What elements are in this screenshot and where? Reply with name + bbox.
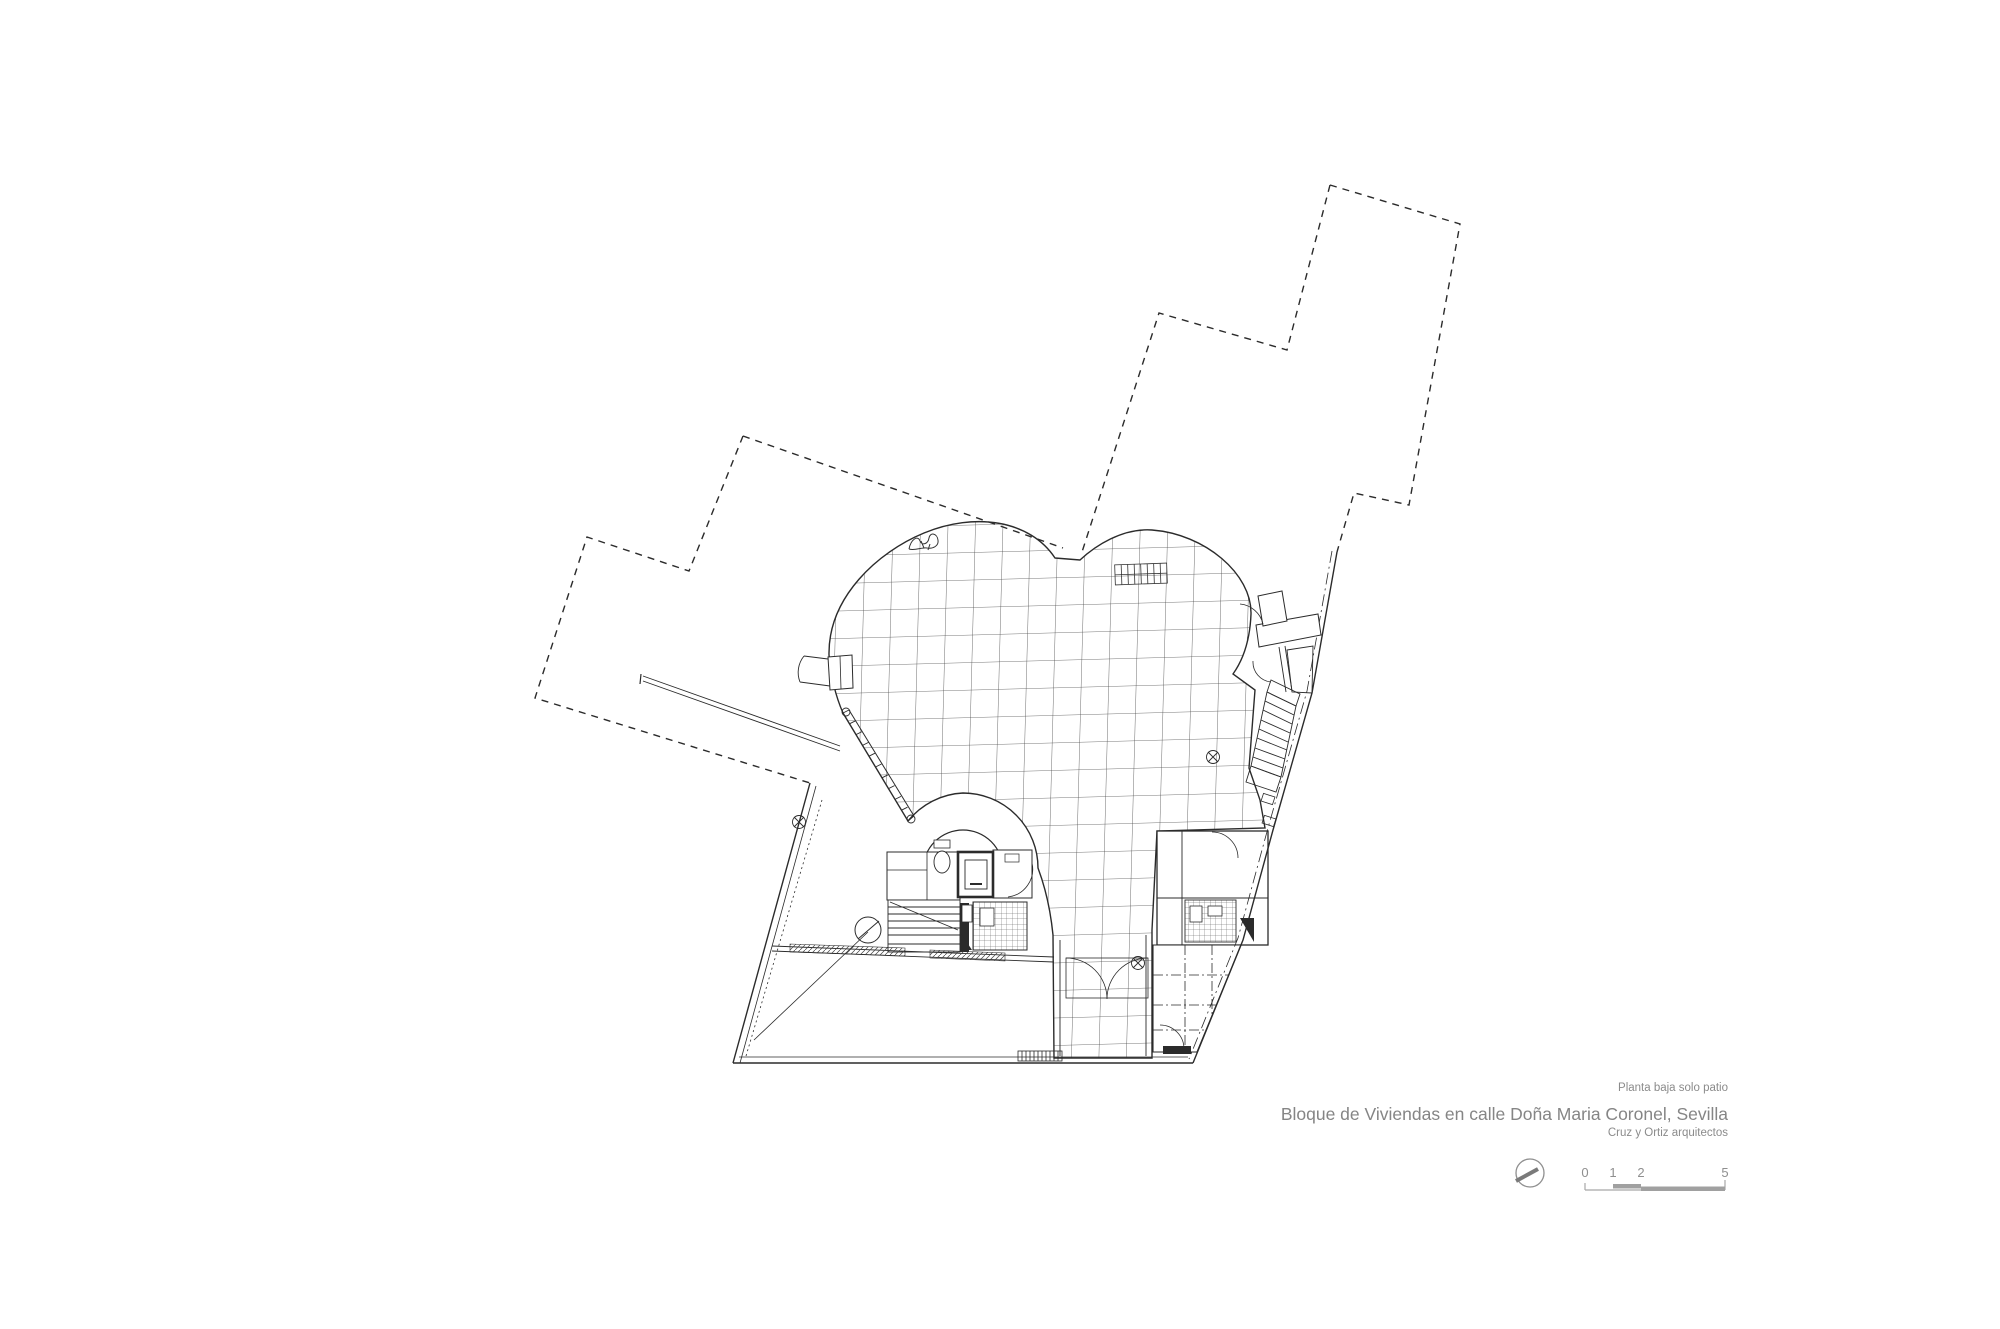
circular-lobby [855, 830, 1033, 952]
portal [1240, 591, 1321, 693]
scale-label-0: 0 [1581, 1165, 1588, 1180]
shower-room [960, 902, 1027, 952]
caption-block: Planta baja solo patio Bloque de Viviend… [1281, 1082, 1728, 1141]
drain-symbol [793, 816, 806, 829]
scale-label-5: 5 [1721, 1165, 1728, 1180]
architects-name: Cruz y Ortiz arquitectos [1281, 1127, 1728, 1140]
lobby-stair [888, 900, 960, 952]
scale-label-2: 2 [1637, 1165, 1644, 1180]
drawing-title: Bloque de Viviendas en calle Doña Maria … [1281, 1104, 1728, 1124]
scale-label-1: 1 [1609, 1165, 1616, 1180]
window-bay [798, 655, 853, 690]
scale-bar: 0 1 2 5 [1581, 1165, 1728, 1191]
spiral-stair [855, 917, 881, 943]
plan-note: Planta baja solo patio [1281, 1082, 1728, 1095]
drawing-sheet: 0 1 2 5 Planta baja solo patio Bloque de… [0, 0, 2000, 1329]
elevator-shaft [958, 852, 993, 897]
room-dashdot-grid [1153, 945, 1241, 1054]
north-arrow-icon [1516, 1159, 1544, 1187]
